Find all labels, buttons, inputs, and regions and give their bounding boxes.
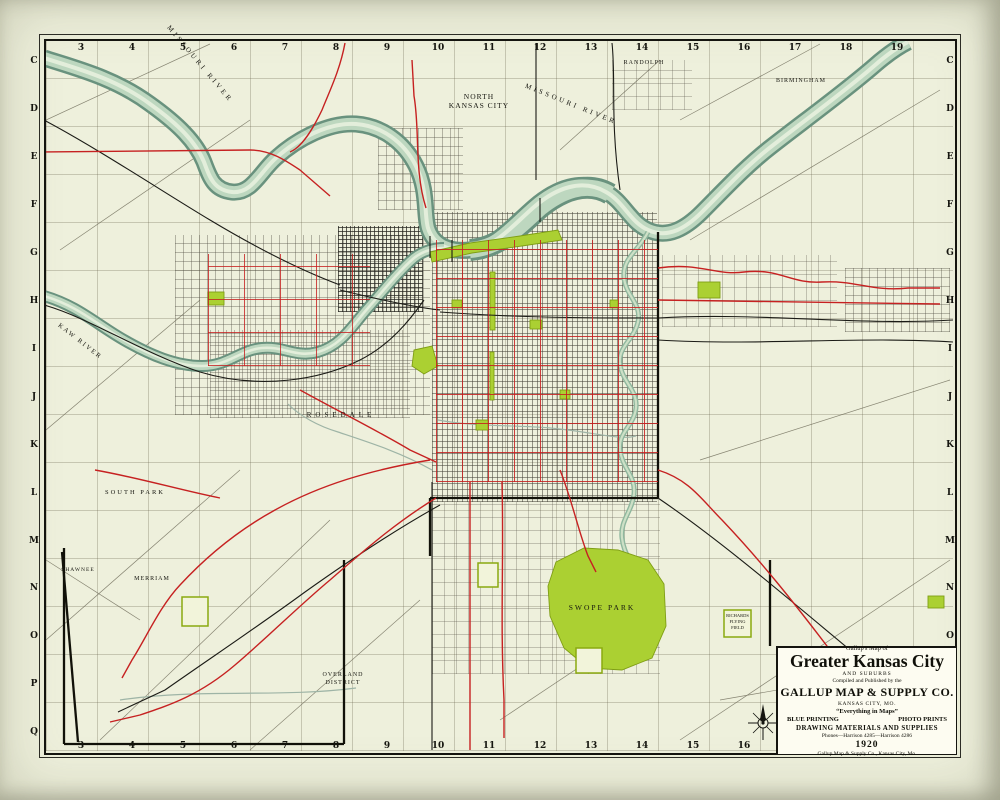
title-subtitle: AND SUBURBS xyxy=(842,671,891,677)
publisher-slogan: “Everything in Maps” xyxy=(836,708,898,715)
publisher-phones: Phones—Harrison 4285—Harrison 4286 xyxy=(822,733,912,739)
publisher-name: GALLUP MAP & SUPPLY CO. xyxy=(780,685,953,700)
publisher-city: KANSAS CITY, MO. xyxy=(838,701,896,707)
service-photo-prints: PHOTO PRINTS xyxy=(898,716,947,723)
service-blue-printing: BLUE PRINTING xyxy=(787,716,839,723)
map-year: 1920 xyxy=(856,740,879,750)
title-block: Gallup's Map of Greater Kansas City AND … xyxy=(776,646,956,754)
published-by: Compiled and Published by the xyxy=(832,678,901,684)
services-row: BLUE PRINTING PHOTO PRINTS xyxy=(787,716,947,723)
publisher-imprint: Gallup Map & Supply Co., Kansas City, Mo… xyxy=(817,751,916,757)
map-title: Greater Kansas City xyxy=(790,653,944,670)
map-sheet: MISSOURI RIVER MISSOURI RIVER KAW RIVER … xyxy=(0,0,1000,800)
service-supplies: DRAWING MATERIALS AND SUPPLIES xyxy=(796,724,938,732)
